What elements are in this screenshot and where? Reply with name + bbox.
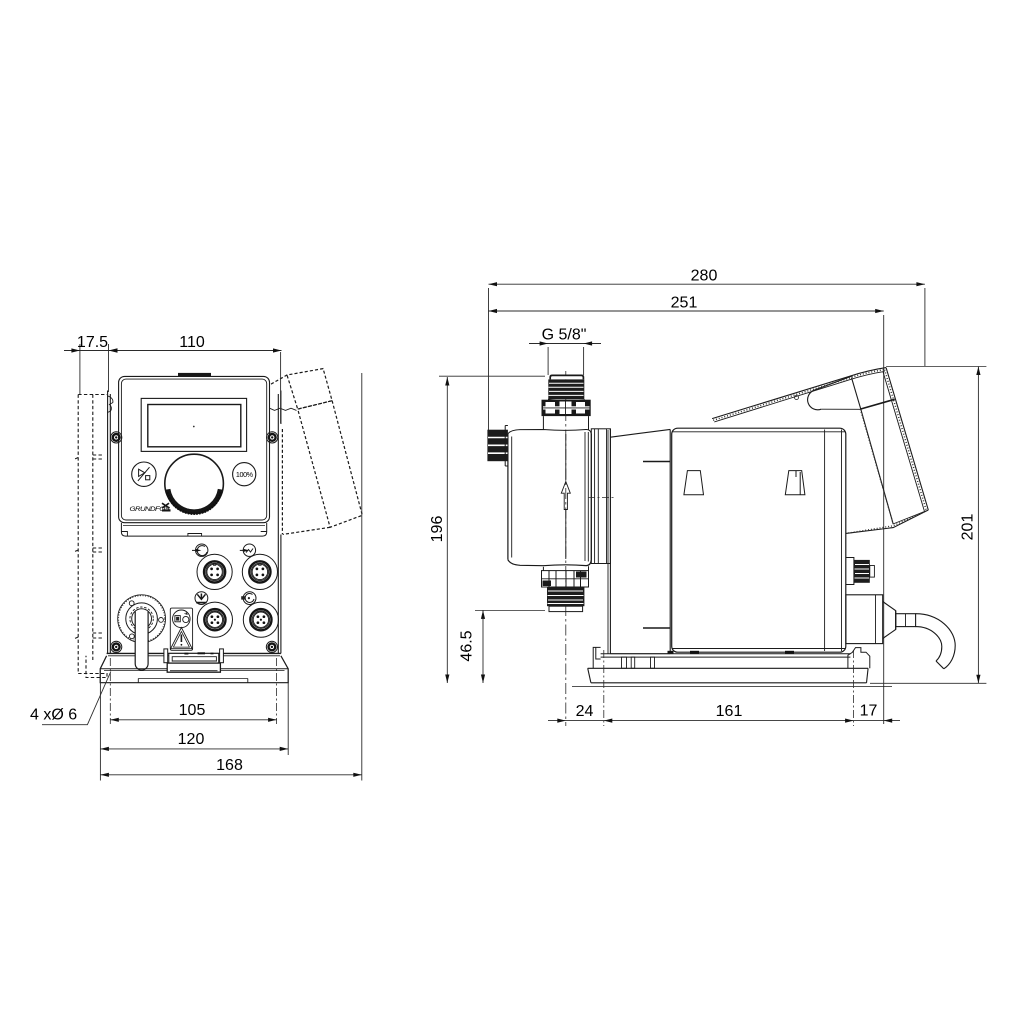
- svg-text:168: 168: [216, 757, 243, 774]
- svg-text:G 5/8": G 5/8": [542, 327, 587, 344]
- svg-text:201: 201: [960, 514, 977, 541]
- svg-text:120: 120: [178, 731, 205, 748]
- svg-text:105: 105: [179, 702, 206, 719]
- svg-text:280: 280: [691, 268, 718, 285]
- svg-text:100%: 100%: [236, 470, 254, 479]
- svg-text:110: 110: [179, 334, 205, 351]
- svg-text:4 xØ 6: 4 xØ 6: [30, 707, 77, 724]
- svg-text:17.5: 17.5: [77, 334, 108, 351]
- svg-text:161: 161: [716, 703, 743, 720]
- svg-text:24: 24: [576, 703, 594, 720]
- svg-text:17: 17: [860, 703, 878, 720]
- svg-text:46.5: 46.5: [459, 630, 476, 661]
- svg-text:251: 251: [671, 295, 698, 312]
- svg-text:196: 196: [429, 516, 446, 543]
